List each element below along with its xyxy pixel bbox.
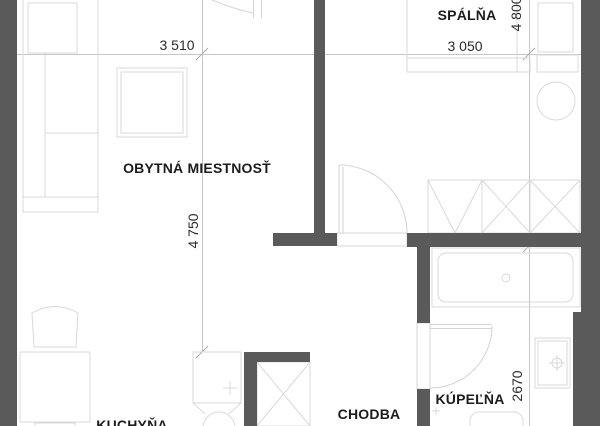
- wall-left: [0, 0, 17, 426]
- dimension-ticks: [196, 48, 535, 358]
- wall-bedroom-bathroom: [407, 233, 582, 247]
- dining-chair: [32, 307, 78, 348]
- hall-closet: [257, 362, 310, 426]
- sofa: [23, 0, 98, 212]
- bedroom-chair: [537, 82, 575, 120]
- furniture: [20, 0, 580, 426]
- room-label-bathroom: KÚPEĽŇA: [435, 392, 504, 406]
- wall-right-upper: [581, 0, 600, 312]
- wall-hall-stub: [273, 233, 337, 246]
- bathtub-drain-icon: [502, 274, 510, 282]
- floor-plan: OBYTNÁ MIESTNOSŤ SPÁLŇA CHODBA KÚPEĽŇA K…: [0, 0, 600, 426]
- bedroom-wardrobe: [428, 180, 580, 233]
- floor-drain-icon: [432, 407, 440, 415]
- floor-plan-drawing: [0, 0, 600, 426]
- wall-closet-left: [244, 352, 257, 426]
- dimension-bathroom-depth: 2670: [510, 370, 524, 401]
- washbasin: [535, 338, 570, 388]
- room-label-bedroom: SPÁLŇA: [438, 8, 497, 22]
- bedroom-door: [337, 165, 407, 246]
- dimension-bedroom-width: 3 050: [447, 39, 482, 53]
- room-label-living-room: OBYTNÁ MIESTNOSŤ: [123, 161, 271, 175]
- bedside-cabinet: [537, 3, 578, 72]
- entry-door: [212, 0, 262, 18]
- bathroom-door: [417, 323, 492, 389]
- dimension-living-room-width: 3 510: [159, 38, 194, 52]
- bathtub: [432, 248, 580, 307]
- dining-table: [20, 352, 90, 422]
- kitchen-counter: [193, 352, 241, 426]
- coffee-table: [117, 68, 187, 137]
- wall-bathroom-left-upper: [417, 247, 430, 323]
- wall-living-bedroom: [314, 0, 325, 233]
- wall-right-lower: [573, 312, 600, 426]
- dimension-living-room-depth: 4 750: [186, 213, 200, 248]
- toilet: [470, 412, 523, 426]
- room-label-hallway: CHODBA: [338, 407, 401, 421]
- dimension-bedroom-depth: 4 800: [509, 0, 523, 32]
- room-label-kitchen: KUCHYŇA: [96, 418, 167, 426]
- kitchen-sink-icon: [203, 412, 235, 426]
- wall-bathroom-left-lower: [417, 389, 430, 426]
